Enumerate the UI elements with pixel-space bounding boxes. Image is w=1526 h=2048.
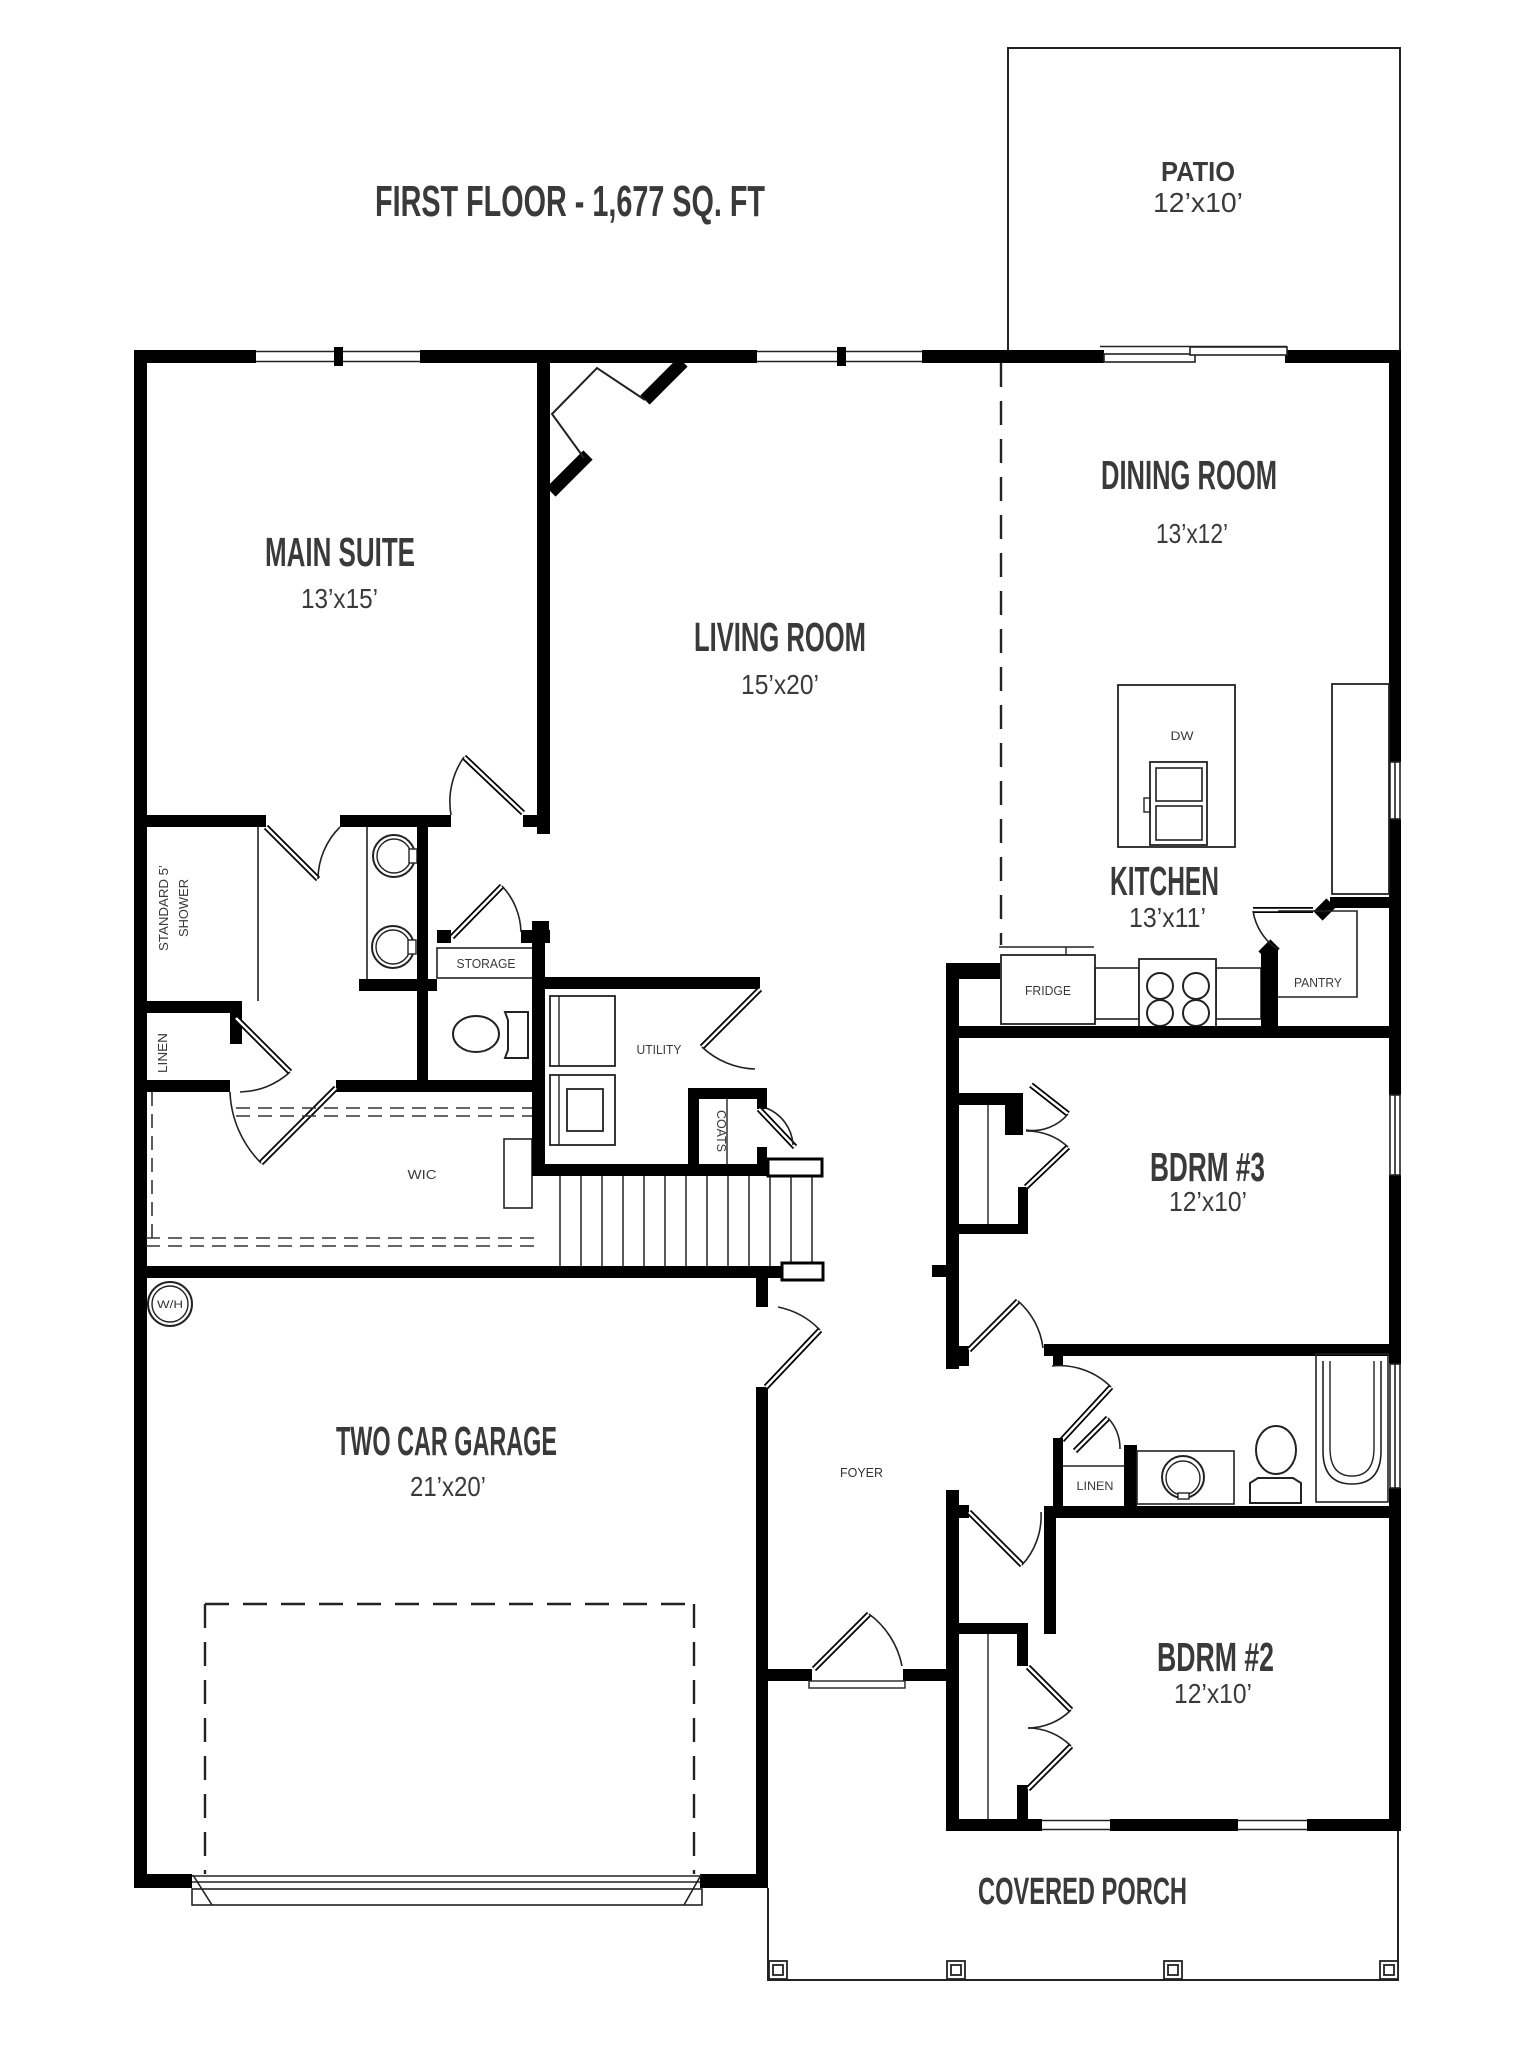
svg-text:DINING ROOM: DINING ROOM — [1101, 452, 1277, 498]
svg-text:FOYER: FOYER — [840, 1465, 883, 1480]
svg-text:TWO CAR GARAGE: TWO CAR GARAGE — [336, 1418, 557, 1464]
svg-text:STORAGE: STORAGE — [457, 957, 516, 971]
svg-text:UTILITY: UTILITY — [637, 1043, 683, 1057]
svg-text:12’x10’: 12’x10’ — [1174, 1678, 1252, 1709]
svg-text:FIRST FLOOR - 1,677 SQ. FT: FIRST FLOOR - 1,677 SQ. FT — [375, 177, 765, 226]
svg-text:12’x10’: 12’x10’ — [1169, 1186, 1247, 1217]
svg-text:W/H: W/H — [157, 1299, 183, 1311]
svg-text:PANTRY: PANTRY — [1294, 976, 1343, 990]
svg-text:15’x20’: 15’x20’ — [741, 669, 819, 700]
svg-text:WIC: WIC — [408, 1168, 437, 1182]
svg-text:PATIO: PATIO — [1161, 156, 1235, 187]
svg-text:KITCHEN: KITCHEN — [1110, 858, 1219, 904]
svg-text:13’x12’: 13’x12’ — [1156, 518, 1228, 549]
svg-text:STANDARD 5’: STANDARD 5’ — [157, 865, 171, 951]
svg-text:LINEN: LINEN — [1077, 1479, 1114, 1493]
svg-text:COATS: COATS — [714, 1110, 728, 1152]
svg-text:LIVING ROOM: LIVING ROOM — [694, 614, 866, 660]
svg-text:BDRM #3: BDRM #3 — [1150, 1144, 1265, 1190]
svg-text:COVERED PORCH: COVERED PORCH — [978, 1871, 1187, 1913]
svg-text:MAIN SUITE: MAIN SUITE — [265, 529, 415, 575]
svg-text:12’x10’: 12’x10’ — [1153, 187, 1243, 218]
svg-text:13’x15’: 13’x15’ — [301, 583, 378, 614]
svg-text:BDRM #2: BDRM #2 — [1157, 1634, 1274, 1680]
svg-text:LINEN: LINEN — [156, 1033, 170, 1073]
svg-text:SHOWER: SHOWER — [177, 879, 191, 937]
svg-text:FRIDGE: FRIDGE — [1025, 984, 1071, 998]
svg-text:DW: DW — [1171, 729, 1195, 743]
svg-text:21’x20’: 21’x20’ — [410, 1471, 486, 1502]
svg-text:13’x11’: 13’x11’ — [1129, 902, 1206, 933]
